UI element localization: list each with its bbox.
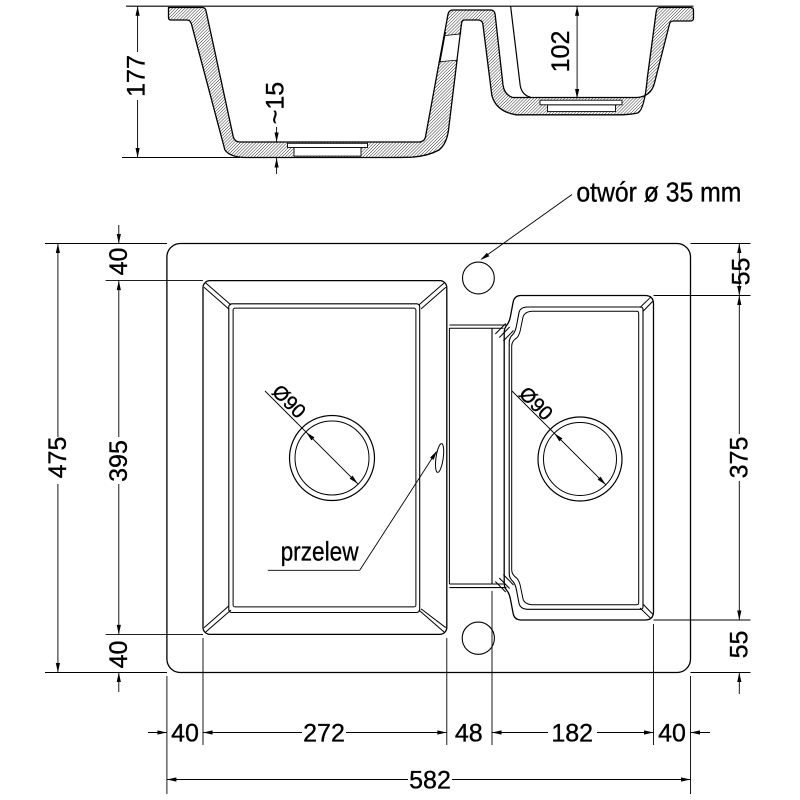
svg-text:475: 475	[44, 437, 72, 479]
svg-text:otwór ø 35 mm: otwór ø 35 mm	[576, 177, 741, 208]
svg-text:182: 182	[551, 720, 593, 748]
svg-text:40: 40	[171, 720, 199, 748]
svg-text:582: 582	[409, 767, 451, 795]
svg-text:55: 55	[725, 631, 753, 659]
svg-text:~15: ~15	[262, 82, 290, 124]
svg-text:40: 40	[658, 720, 686, 748]
svg-text:102: 102	[547, 31, 575, 73]
svg-text:Ø90: Ø90	[514, 383, 556, 425]
svg-text:40: 40	[105, 248, 133, 276]
svg-text:177: 177	[123, 55, 151, 97]
svg-text:272: 272	[303, 720, 345, 748]
svg-text:55: 55	[728, 258, 756, 286]
svg-text:375: 375	[725, 437, 753, 479]
svg-text:395: 395	[105, 440, 133, 482]
svg-text:przelew: przelew	[281, 536, 359, 566]
svg-text:40: 40	[105, 641, 133, 669]
svg-text:Ø90: Ø90	[267, 381, 309, 423]
svg-text:48: 48	[455, 720, 483, 748]
